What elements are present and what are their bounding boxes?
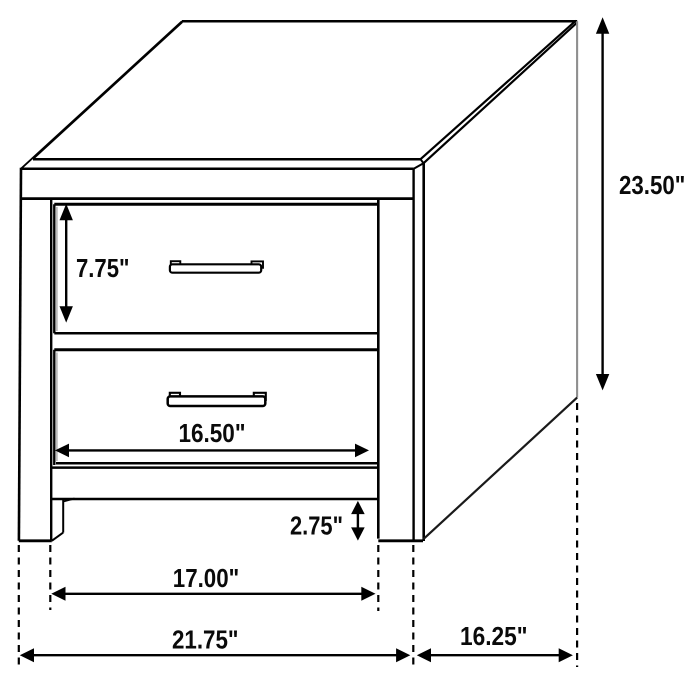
svg-text:16.50": 16.50" [179,418,246,448]
svg-text:17.00": 17.00" [173,563,239,593]
svg-text:16.25": 16.25" [460,621,528,651]
svg-text:2.75": 2.75" [290,511,343,541]
svg-text:21.75": 21.75" [172,625,239,655]
svg-text:23.50": 23.50" [619,170,685,200]
svg-text:7.75": 7.75" [76,253,130,283]
